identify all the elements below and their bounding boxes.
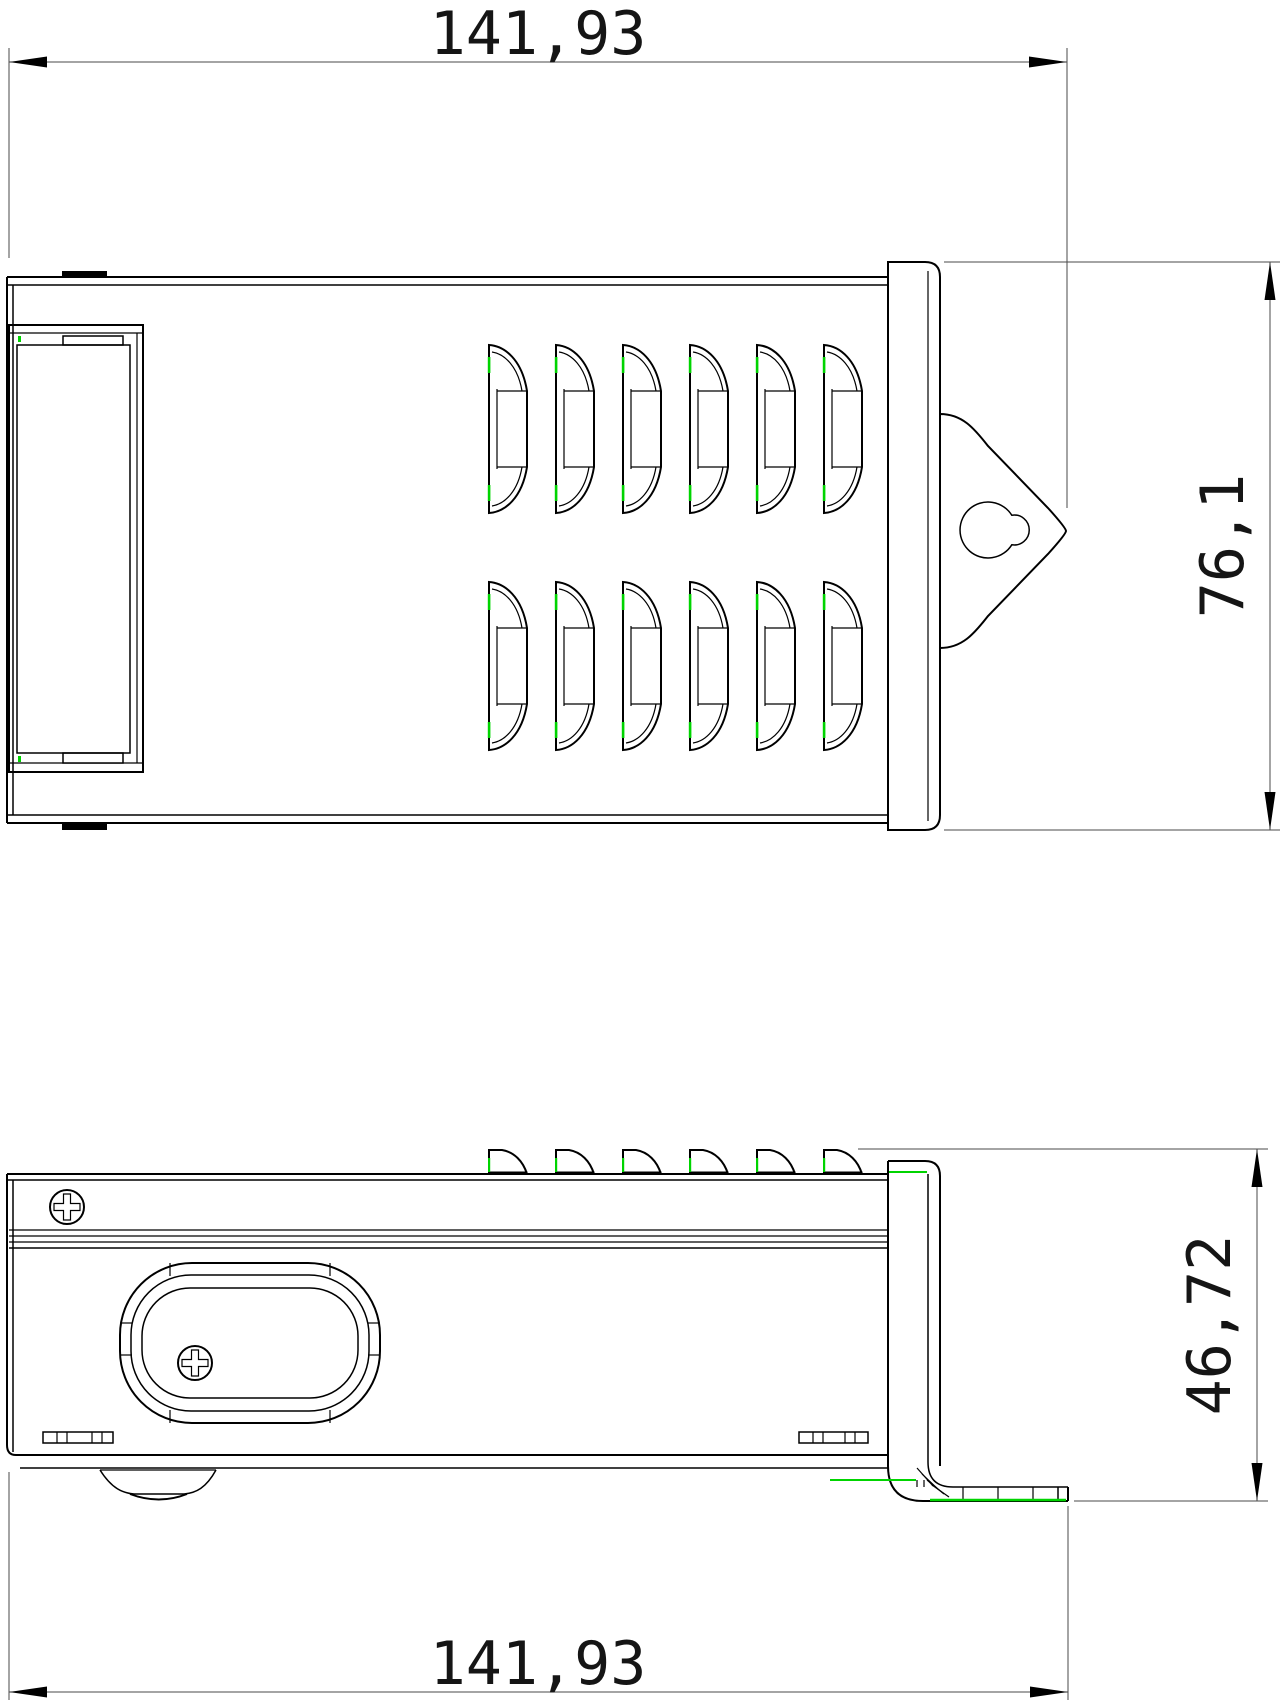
dim-label-side-view-height: 46,72: [1175, 1235, 1245, 1416]
edge-weld-mark-top: [62, 271, 107, 277]
vent-slot-strip-left: [43, 1432, 113, 1443]
dimension-bottom-width: 141,93: [9, 1472, 1068, 1700]
edge-weld-mark-bottom: [62, 824, 107, 830]
dimension-side-view-height: 46,72: [858, 1149, 1268, 1501]
end-plate: [888, 262, 940, 830]
dim-label-top-width: 141,93: [430, 0, 647, 69]
dim-label-top-view-height: 76,1: [1188, 474, 1258, 619]
keyhole-mounting-tab: [940, 414, 1066, 648]
cad-canvas: 141,93 76,1 46,72 141,93: [0, 0, 1280, 1705]
louver-vents-top-row: [488, 345, 862, 513]
bend-hatch: [917, 1468, 949, 1497]
obround-boss: [120, 1263, 380, 1423]
bottom-bump: [100, 1470, 216, 1500]
side-view: [7, 1150, 1068, 1501]
side-case-outline: [7, 1174, 888, 1468]
lid-groove: [9, 1230, 888, 1248]
mounting-bracket: [830, 1161, 1068, 1501]
cover-tab-top: [63, 336, 123, 345]
cover-tab-bottom: [63, 753, 123, 763]
dim-label-bottom-width: 141,93: [430, 1629, 647, 1699]
louver-vents-bottom-row: [488, 582, 862, 750]
phillips-screw-icon-boss: [178, 1346, 212, 1380]
vent-slot-strip-right: [799, 1432, 868, 1443]
top-view: [7, 262, 1066, 830]
louver-fins: [488, 1150, 863, 1175]
terminal-cover: [9, 325, 143, 772]
drawing-sheet: 141,93 76,1 46,72 141,93: [0, 0, 1280, 1705]
phillips-screw-icon-top: [50, 1190, 84, 1224]
chassis-outline: [7, 271, 888, 830]
